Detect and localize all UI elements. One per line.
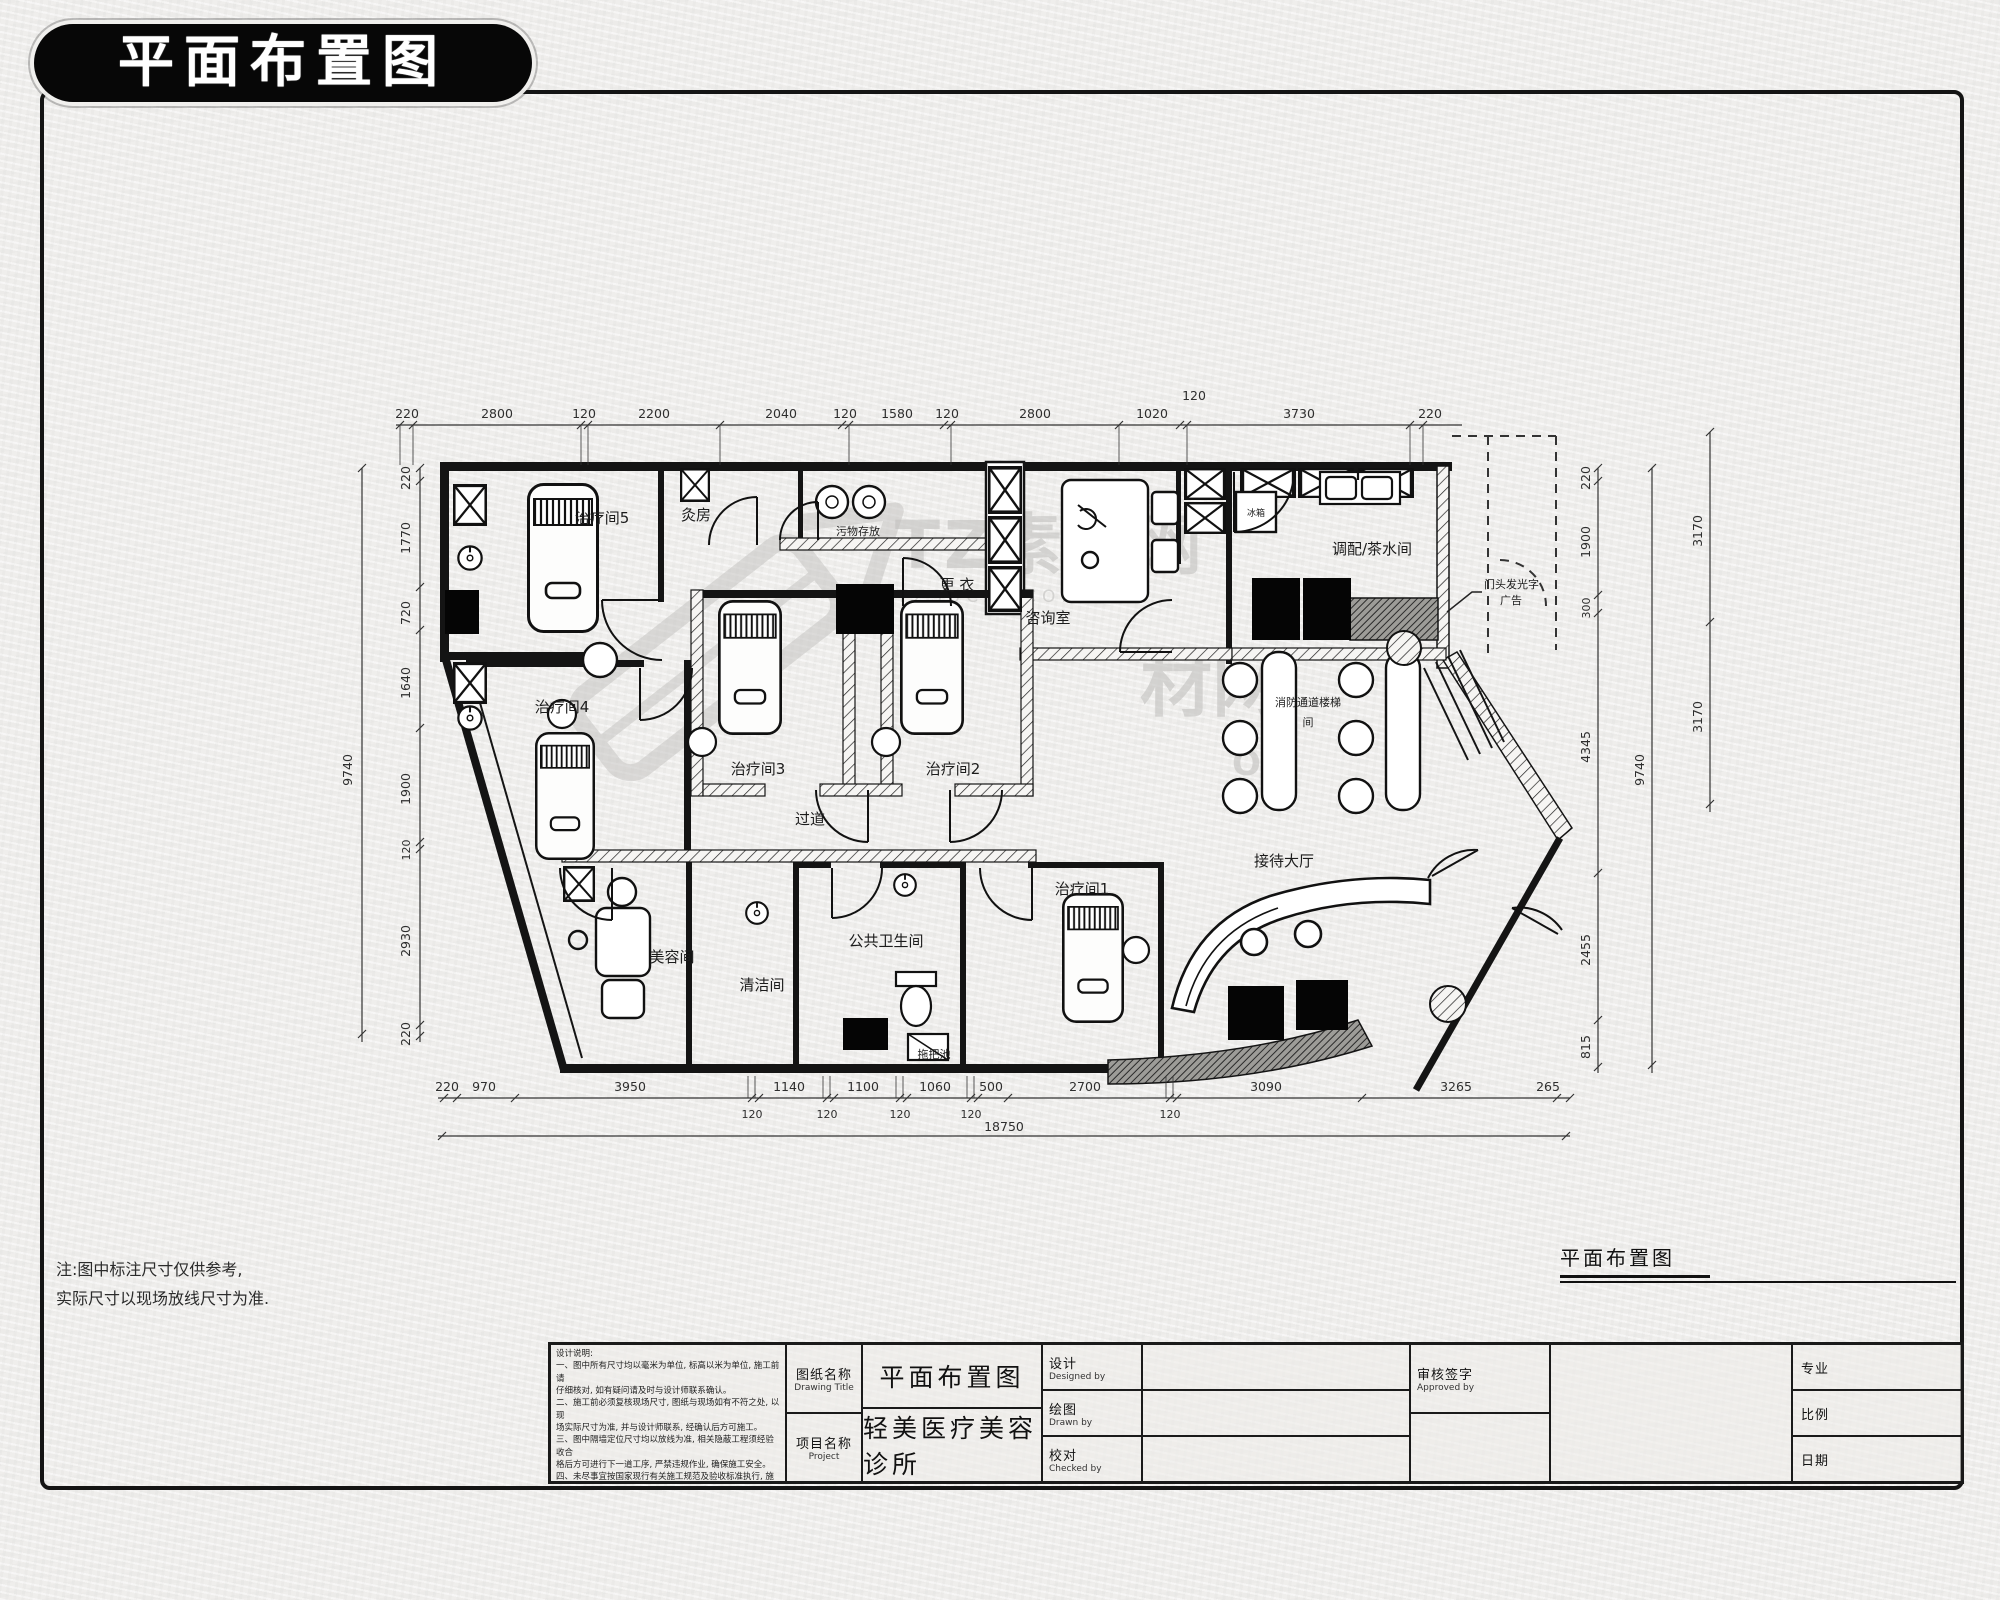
tea-room-sink bbox=[1320, 472, 1400, 504]
sign-leader: 门头发光字 广告 bbox=[1447, 577, 1539, 612]
dim-left-7: 220 bbox=[398, 1022, 413, 1046]
waiting-tables bbox=[1223, 652, 1420, 813]
washer-1 bbox=[816, 486, 848, 518]
sheet-note-line2: 实际尺寸以现场放线尺寸为准. bbox=[56, 1285, 269, 1314]
room-label-treatment4: 治疗间4 bbox=[535, 698, 590, 716]
room-label-treatment2: 治疗间2 bbox=[926, 760, 981, 778]
dim-left-1: 1770 bbox=[398, 522, 413, 554]
tb-designed-en: Designed by bbox=[1049, 1372, 1141, 1382]
washer-2 bbox=[853, 486, 885, 518]
dashed-exterior-lines bbox=[1452, 436, 1556, 655]
room-label-treatment5: 治疗间5 bbox=[575, 509, 630, 527]
room-label-treatment3: 治疗间3 bbox=[731, 760, 786, 778]
tb-checked-en: Checked by bbox=[1049, 1464, 1141, 1474]
dim-top-4: 2040 bbox=[765, 406, 797, 421]
dim-right-far-1: 3170 bbox=[1690, 701, 1705, 733]
dim-left-0: 220 bbox=[398, 466, 413, 490]
tb-project-label-en: Project bbox=[809, 1452, 840, 1462]
dim-top-0: 220 bbox=[395, 406, 419, 421]
title-block-approve: 审核签字 Approved by bbox=[1411, 1345, 1551, 1481]
tb-sheet-value: 平面布置图 bbox=[879, 1358, 1024, 1394]
dim-top-12: 220 bbox=[1418, 406, 1442, 421]
room-label-moxa: 灸房 bbox=[681, 506, 711, 524]
room-label-dispense-tea: 调配/茶水间 bbox=[1332, 540, 1412, 558]
room-label-reception: 接待大厅 bbox=[1254, 852, 1314, 870]
dim-top-3: 2200 bbox=[638, 406, 670, 421]
tb-pro-row-0: 专业 bbox=[1801, 1358, 1829, 1377]
dim-top-9: 1020 bbox=[1136, 406, 1168, 421]
dim-bottom-6: 500 bbox=[979, 1079, 1003, 1094]
dim-bottom-8: 3090 bbox=[1250, 1079, 1282, 1094]
dim-left-5: 120 bbox=[400, 840, 413, 861]
room-label-beauty: 美容间 bbox=[649, 948, 694, 966]
dim-left-4: 1900 bbox=[398, 773, 413, 805]
tb-pro-row-2: 日期 bbox=[1801, 1450, 1829, 1469]
room-label-cleaning: 清洁间 bbox=[739, 976, 784, 994]
cad-sheet: { "badge": { "title": "平面布置图" }, "waterm… bbox=[0, 0, 2000, 1600]
sheet-note: 注:图中标注尺寸仅供参考, 实际尺寸以现场放线尺寸为准. bbox=[56, 1256, 269, 1314]
room-label-fridge: 冰箱 bbox=[1247, 507, 1265, 519]
dim-top-5: 120 bbox=[833, 406, 857, 421]
drawing-name-underline-thin bbox=[1560, 1281, 1956, 1283]
room-label-fire-stair-2: 间 bbox=[1303, 716, 1314, 729]
room-label-treatment1: 治疗间1 bbox=[1055, 880, 1110, 898]
room-label-waste: 污物存放 bbox=[836, 524, 880, 538]
dim-top-2: 120 bbox=[572, 406, 596, 421]
tb-drawn-cn: 绘图 bbox=[1049, 1399, 1141, 1418]
tb-notes-line: 一、图中所有尺寸均以毫米为单位, 标高以米为单位, 施工前请 bbox=[556, 1360, 780, 1385]
tb-approved-en: Approved by bbox=[1417, 1383, 1549, 1393]
dim-bottom-sub-1: 120 bbox=[817, 1108, 838, 1121]
plant-tea-room bbox=[1387, 631, 1421, 665]
dim-right-5: 815 bbox=[1578, 1035, 1593, 1059]
room-label-consult: 咨询室 bbox=[1025, 609, 1070, 627]
dim-left-total: 9740 bbox=[340, 754, 355, 786]
room-label-public-wc: 公共卫生间 bbox=[848, 932, 923, 950]
dim-top-8: 2800 bbox=[1019, 406, 1051, 421]
sign-label-line2: 广告 bbox=[1500, 594, 1522, 607]
dim-top-6: 1580 bbox=[881, 406, 913, 421]
dim-top-11: 3730 bbox=[1283, 406, 1315, 421]
dim-right-4: 2455 bbox=[1578, 934, 1593, 966]
basin-treatment4 bbox=[458, 706, 481, 730]
dim-right-2: 300 bbox=[1580, 598, 1593, 619]
dim-right-far-0: 3170 bbox=[1690, 515, 1705, 547]
dim-bottom-sub-3: 120 bbox=[961, 1108, 982, 1121]
dim-right-3: 4345 bbox=[1578, 731, 1593, 763]
basin-treatment5 bbox=[458, 546, 481, 570]
dim-bottom-3: 1140 bbox=[773, 1079, 805, 1094]
dim-bottom-total: 18750 bbox=[984, 1119, 1024, 1134]
title-block-staff-values bbox=[1143, 1345, 1411, 1481]
drawing-name-text: 平面布置图 bbox=[1560, 1242, 1958, 1271]
tb-notes-title: 设计说明: bbox=[556, 1348, 780, 1360]
dim-right-total: 9740 bbox=[1632, 754, 1647, 786]
title-block-profession: 专业 比例 日期 bbox=[1793, 1345, 1961, 1481]
dim-left-2: 720 bbox=[398, 601, 413, 625]
basin-cleaning bbox=[746, 902, 768, 924]
tb-approve-empty-row bbox=[1411, 1414, 1549, 1481]
dim-bottom-7: 2700 bbox=[1069, 1079, 1101, 1094]
dim-bottom-sub-2: 120 bbox=[890, 1108, 911, 1121]
dim-left-3: 1640 bbox=[398, 667, 413, 699]
basin-wc bbox=[894, 874, 916, 896]
title-block-name-values: 平面布置图 轻美医疗美容诊所 bbox=[863, 1345, 1043, 1481]
drawing-name-label: 平面布置图 bbox=[1560, 1242, 1958, 1283]
sheet-note-line1: 注:图中标注尺寸仅供参考, bbox=[56, 1256, 269, 1285]
dim-bottom-0: 220 bbox=[435, 1079, 459, 1094]
dim-bottom-2: 3950 bbox=[614, 1079, 646, 1094]
bed-treatment3 bbox=[719, 601, 780, 733]
room-label-mop-sink: 拖把池 bbox=[918, 1047, 951, 1061]
title-block-staff-labels: 设计 Designed by 绘图 Drawn by 校对 Checked by bbox=[1043, 1345, 1143, 1481]
dim-bottom-sub-0: 120 bbox=[742, 1108, 763, 1121]
tb-notes-line: 仔细核对, 如有疑问请及时与设计师联系确认。 bbox=[556, 1385, 780, 1397]
dim-top-10: 120 bbox=[1182, 388, 1206, 403]
tb-designed-cn: 设计 bbox=[1049, 1353, 1141, 1372]
dim-bottom-9: 3265 bbox=[1440, 1079, 1472, 1094]
bed-treatment2 bbox=[901, 601, 962, 733]
plant-reception bbox=[1430, 986, 1466, 1022]
tb-notes-line: 格后方可进行下一道工序, 严禁违规作业, 确保施工安全。 bbox=[556, 1459, 780, 1471]
title-block: 设计说明: 一、图中所有尺寸均以毫米为单位, 标高以米为单位, 施工前请 仔细核… bbox=[548, 1342, 1964, 1484]
title-block-spacer bbox=[1551, 1345, 1793, 1481]
tb-sheet-label-en: Drawing Title bbox=[794, 1383, 854, 1393]
tb-project-value: 轻美医疗美容诊所 bbox=[863, 1409, 1041, 1481]
tb-approved-cn: 审核签字 bbox=[1417, 1364, 1549, 1383]
dim-bottom-sub-4: 120 bbox=[1160, 1108, 1181, 1121]
tb-pro-row-1: 比例 bbox=[1801, 1404, 1829, 1423]
dim-right-0: 220 bbox=[1578, 466, 1593, 490]
title-block-notes: 设计说明: 一、图中所有尺寸均以毫米为单位, 标高以米为单位, 施工前请 仔细核… bbox=[551, 1345, 787, 1481]
bed-treatment5 bbox=[529, 485, 598, 632]
room-label-corridor: 过道 bbox=[795, 810, 825, 828]
tb-drawn-en: Drawn by bbox=[1049, 1418, 1141, 1428]
tb-notes-line: 二、施工前必须复核现场尺寸, 图纸与现场如有不符之处, 以现 bbox=[556, 1397, 780, 1422]
dim-bottom-1: 970 bbox=[472, 1079, 496, 1094]
bed-treatment4 bbox=[536, 733, 594, 858]
dim-right-1: 1900 bbox=[1578, 526, 1593, 558]
title-block-name-labels: 图纸名称 Drawing Title 项目名称 Project bbox=[787, 1345, 863, 1481]
tb-notes-line: 四、未尽事宜按国家现行有关施工规范及验收标准执行, 施工过 bbox=[556, 1471, 780, 1481]
dim-top-1: 2800 bbox=[481, 406, 513, 421]
dim-bottom-4: 1100 bbox=[847, 1079, 879, 1094]
tb-project-label-cn: 项目名称 bbox=[796, 1433, 852, 1452]
tb-notes-line: 三、图中隔墙定位尺寸均以放线为准, 相关隐蔽工程须经验收合 bbox=[556, 1434, 780, 1459]
tb-drawn-value bbox=[1143, 1391, 1409, 1437]
tb-checked-value bbox=[1143, 1437, 1409, 1481]
room-label-fire-stair-1: 消防通道楼梯 bbox=[1275, 695, 1341, 709]
tb-designed-value bbox=[1143, 1345, 1409, 1391]
tb-notes-line: 场实际尺寸为准, 并与设计师联系, 经确认后方可施工。 bbox=[556, 1422, 780, 1434]
dim-top-7: 120 bbox=[935, 406, 959, 421]
tb-sheet-label-cn: 图纸名称 bbox=[796, 1364, 852, 1383]
drawing-name-underline-thick bbox=[1560, 1275, 1710, 1278]
dim-bottom-10: 265 bbox=[1536, 1079, 1560, 1094]
dim-left-6: 2930 bbox=[398, 925, 413, 957]
toilet bbox=[896, 972, 936, 1026]
bed-treatment1 bbox=[1063, 894, 1122, 1021]
dim-bottom-5: 1060 bbox=[919, 1079, 951, 1094]
tb-checked-cn: 校对 bbox=[1049, 1445, 1141, 1464]
room-label-changing: 更 衣 bbox=[940, 576, 975, 594]
sign-label-line1: 门头发光字 bbox=[1484, 577, 1539, 591]
